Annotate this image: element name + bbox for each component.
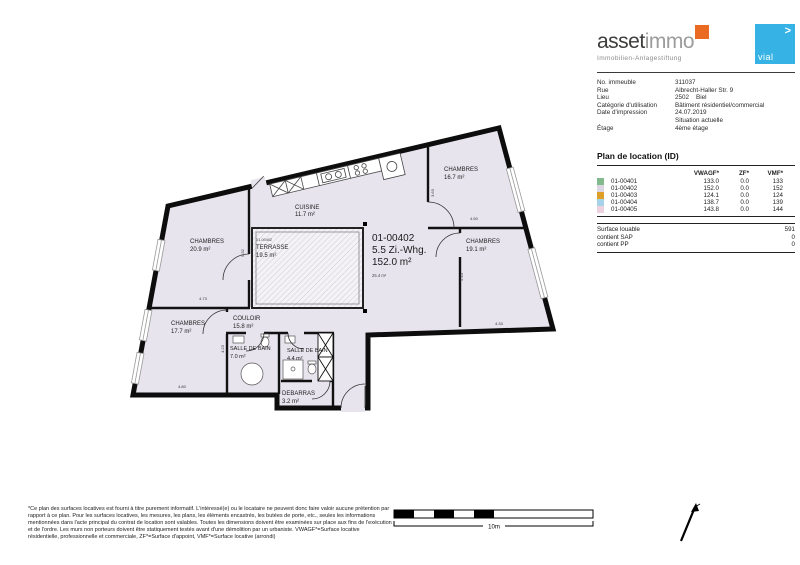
brand-name-secondary: immo [645, 30, 694, 53]
room-area: 7.0 m² [230, 354, 246, 360]
unit-id-cell: 01-00403 [611, 192, 671, 199]
page: { "brand": { "wordmark_primary": "asset"… [0, 0, 800, 565]
dimension: 4.73 [199, 296, 208, 301]
info-row: Lieu2502 Biel [597, 94, 795, 102]
dimension: 4.33 [495, 321, 504, 326]
info-value: Albrecht-Haller Str. 9 [675, 87, 733, 95]
brand-wordmark: assetimmo [597, 24, 709, 52]
color-swatch [597, 199, 604, 206]
partner-logo-text: vial [758, 52, 774, 62]
summary-row: contient PP0 [597, 241, 795, 249]
summary-label: Surface louable [597, 226, 640, 234]
property-info: No. immeuble311037 RueAlbrecht-Haller St… [597, 79, 795, 132]
color-swatch [597, 178, 604, 185]
location-table: VWAGF* ZF* VMF* 01-00401 133.0 0.0 133 0… [597, 169, 795, 217]
info-label: No. immeuble [597, 79, 675, 87]
terrace-unit-tag: 01-00402 [256, 238, 272, 242]
summary-label: contient PP [597, 241, 629, 249]
table-row: 01-00401 133.0 0.0 133 [597, 178, 795, 185]
summary-value: 0 [792, 241, 795, 249]
summary-value: 0 [792, 234, 795, 242]
info-label: Catégorie d'utilisation [597, 102, 675, 110]
unit-type: 5.5 Zi.-Whg. [372, 245, 426, 256]
unit-id-cell: 01-00401 [611, 178, 671, 185]
info-row: Catégorie d'utilisationBâtiment résident… [597, 102, 795, 110]
brand-wordmark-block: assetimmo Immobilien-Anlagestiftung [597, 24, 709, 62]
room-label: TERRASSE [256, 245, 288, 251]
info-panel: assetimmo Immobilien-Anlagestiftung > vi… [597, 24, 795, 253]
vmf-cell: 152 [749, 185, 783, 192]
info-row: Date d'impression24.07.2019 [597, 109, 795, 117]
color-swatch [597, 206, 604, 213]
vmf-cell: 133 [749, 178, 783, 185]
scale-bar: 10m [394, 510, 593, 531]
info-row: No. immeuble311037 [597, 79, 795, 87]
vwagf-cell: 124.1 [671, 192, 719, 199]
info-value: 311037 [675, 79, 696, 87]
table-row: 01-00403 124.1 0.0 124 [597, 192, 795, 199]
zf-cell: 0.0 [719, 199, 749, 206]
vmf-cell: 144 [749, 206, 783, 213]
unit-id-cell: 01-00404 [611, 199, 671, 206]
info-value: 2502 Biel [675, 94, 707, 102]
room-label: CHAMBRES [466, 239, 500, 245]
unit-area: 152.0 m² [372, 257, 412, 268]
dimension: 5.32 [240, 248, 245, 257]
table-row: 01-00405 143.8 0.0 144 [597, 206, 795, 213]
column-header: ZF* [719, 169, 749, 178]
unit-sub-area: 25.4 m² [372, 273, 387, 278]
zf-cell: 0.0 [719, 206, 749, 213]
location-table-header: VWAGF* ZF* VMF* [597, 169, 795, 178]
disclaimer-text: *Ce plan des surfaces locatives est four… [28, 506, 392, 541]
room-area: 11.7 m² [295, 212, 315, 218]
room-area: 16.7 m² [444, 175, 464, 181]
table-row: 01-00404 138.7 0.0 139 [597, 199, 795, 206]
vwagf-cell: 138.7 [671, 199, 719, 206]
brand-tagline: Immobilien-Anlagestiftung [597, 55, 709, 62]
column-header: VMF* [749, 169, 783, 178]
color-swatch [597, 185, 604, 192]
info-label: Lieu [597, 94, 675, 102]
summary-row: contient SAP0 [597, 234, 795, 242]
room-area: 20.9 m² [190, 247, 210, 253]
dimension: 3.63 [430, 188, 435, 197]
room-label: CHAMBRES [444, 167, 478, 173]
shaft [318, 333, 333, 381]
chevron-right-icon: > [785, 25, 791, 37]
summary-block: Surface louable591 contient SAP0 contien… [597, 223, 795, 253]
partner-logo: > vial [755, 24, 795, 64]
info-row: Étage4ème étage [597, 125, 795, 133]
room-area: 17.7 m² [171, 329, 191, 335]
column-header: VWAGF* [671, 169, 719, 178]
zf-cell: 0.0 [719, 178, 749, 185]
room-area: 15.8 m² [233, 324, 253, 330]
summary-value: 591 [785, 226, 795, 234]
dimension: 4.50 [470, 216, 479, 221]
dimension: 4.80 [178, 384, 187, 389]
room-area: 19.1 m² [466, 247, 486, 253]
zf-cell: 0.0 [719, 185, 749, 192]
vmf-cell: 139 [749, 199, 783, 206]
section-title: Plan de location (ID) [597, 151, 795, 166]
unit-id: 01-00402 [372, 233, 415, 244]
brand-header: assetimmo Immobilien-Anlagestiftung > vi… [597, 24, 795, 68]
room-label: CUISINE [295, 205, 319, 211]
room-label: SALLE DE BAIN [230, 346, 271, 352]
table-row: 01-00402 152.0 0.0 152 [597, 185, 795, 192]
room-label: CHAMBRES [171, 321, 205, 327]
vmf-cell: 124 [749, 192, 783, 199]
vwagf-cell: 152.0 [671, 185, 719, 192]
unit-id-cell: 01-00402 [611, 185, 671, 192]
unit-id-cell: 01-00405 [611, 206, 671, 213]
info-value: Situation actuelle [675, 117, 723, 125]
info-value: 4ème étage [675, 125, 708, 133]
info-value: Bâtiment résidentiel/commercial [675, 102, 764, 110]
vwagf-cell: 143.8 [671, 206, 719, 213]
info-label: Rue [597, 87, 675, 95]
vwagf-cell: 133.0 [671, 178, 719, 185]
zf-cell: 0.0 [719, 192, 749, 199]
brand-orange-square-icon [695, 25, 709, 39]
north-arrow-icon [681, 503, 700, 541]
info-value: 24.07.2019 [675, 109, 707, 117]
info-row: RueAlbrecht-Haller Str. 9 [597, 87, 795, 95]
room-label: COULOIR [233, 316, 261, 322]
info-label [597, 117, 675, 125]
room-label: SALLE DE BAIN [287, 348, 328, 354]
room-area: 19.5 m² [256, 253, 276, 259]
room-area: 4.4 m² [287, 356, 303, 362]
summary-row: Surface louable591 [597, 226, 795, 234]
info-label: Étage [597, 125, 675, 133]
divider [597, 72, 795, 73]
room-label: DEBARRAS [282, 391, 315, 397]
brand-name-primary: asset [597, 30, 645, 53]
scale-label: 10m [488, 525, 500, 531]
info-row: Situation actuelle [597, 117, 795, 125]
summary-label: contient SAP [597, 234, 633, 242]
dimension: 4.23 [220, 344, 225, 353]
terrace [252, 222, 367, 313]
room-label: CHAMBRES [190, 239, 224, 245]
info-label: Date d'impression [597, 109, 675, 117]
room-area: 3.2 m² [282, 399, 299, 405]
dimension: 5.10 [459, 272, 464, 281]
color-swatch [597, 192, 604, 199]
